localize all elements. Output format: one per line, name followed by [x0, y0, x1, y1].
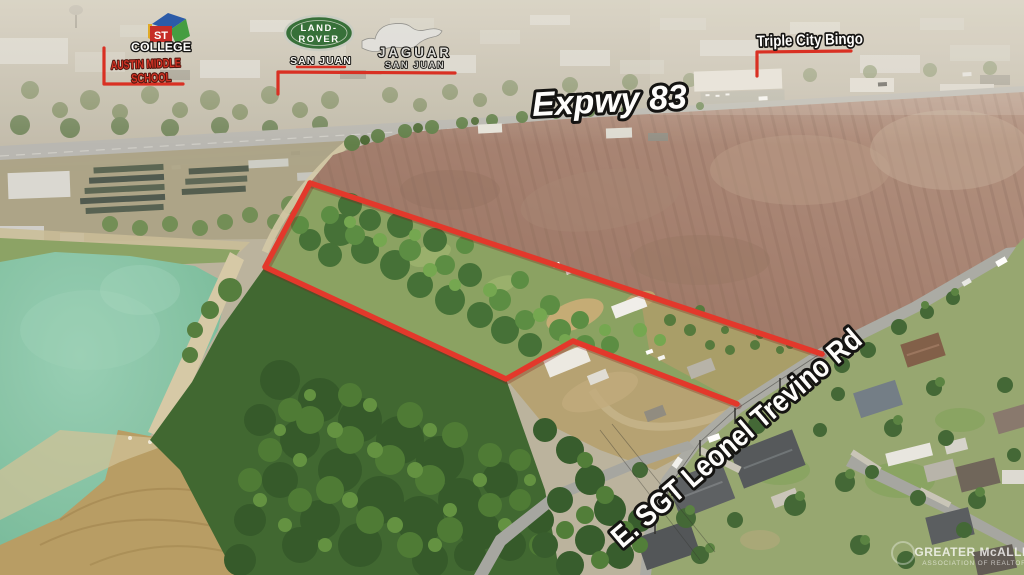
aerial-property-photo: ST COLLEGE AUSTIN MIDDLE SCHOOL LAND- RO… — [0, 0, 1024, 575]
aerial-scene: ST COLLEGE AUSTIN MIDDLE SCHOOL LAND- RO… — [0, 0, 1024, 575]
photo-tint — [0, 0, 1024, 575]
